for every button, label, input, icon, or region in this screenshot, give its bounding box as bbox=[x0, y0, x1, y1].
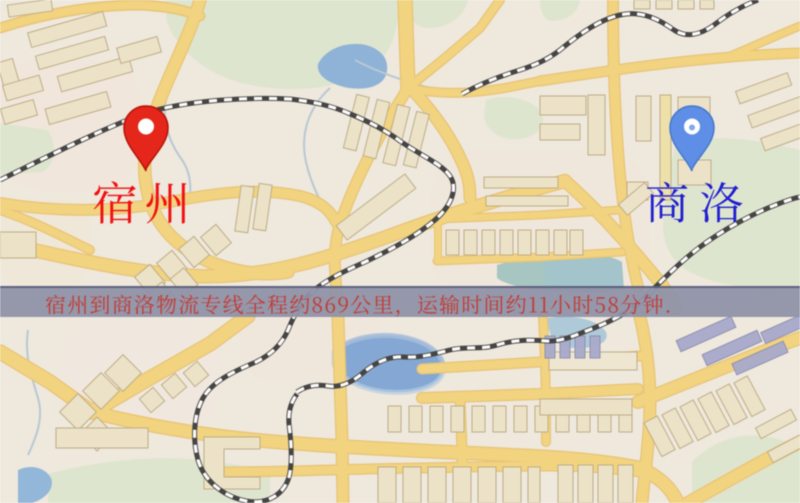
svg-text:商洛: 商洛 bbox=[645, 168, 754, 232]
svg-text:宿州: 宿州 bbox=[92, 168, 197, 234]
svg-text:宿州到商洛物流专线全程约869公里，运输时间约11小时58分: 宿州到商洛物流专线全程约869公里，运输时间约11小时58分钟. bbox=[45, 290, 673, 320]
